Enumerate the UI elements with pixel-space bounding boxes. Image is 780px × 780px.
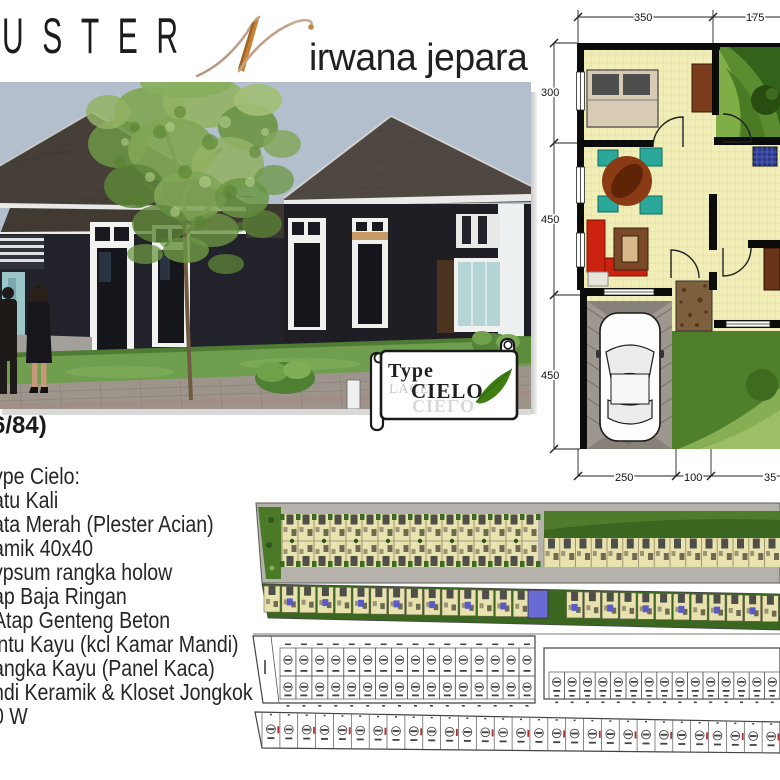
svg-text:450: 450: [541, 214, 559, 226]
svg-text:350: 350: [634, 12, 652, 24]
svg-text:250: 250: [615, 472, 633, 484]
svg-text:300: 300: [541, 87, 559, 99]
svg-text:CIELO: CIELO: [412, 396, 475, 416]
svg-text:35: 35: [764, 472, 776, 484]
svg-text:100: 100: [684, 472, 702, 484]
svg-text:450: 450: [541, 370, 559, 382]
svg-text:175: 175: [746, 12, 764, 24]
